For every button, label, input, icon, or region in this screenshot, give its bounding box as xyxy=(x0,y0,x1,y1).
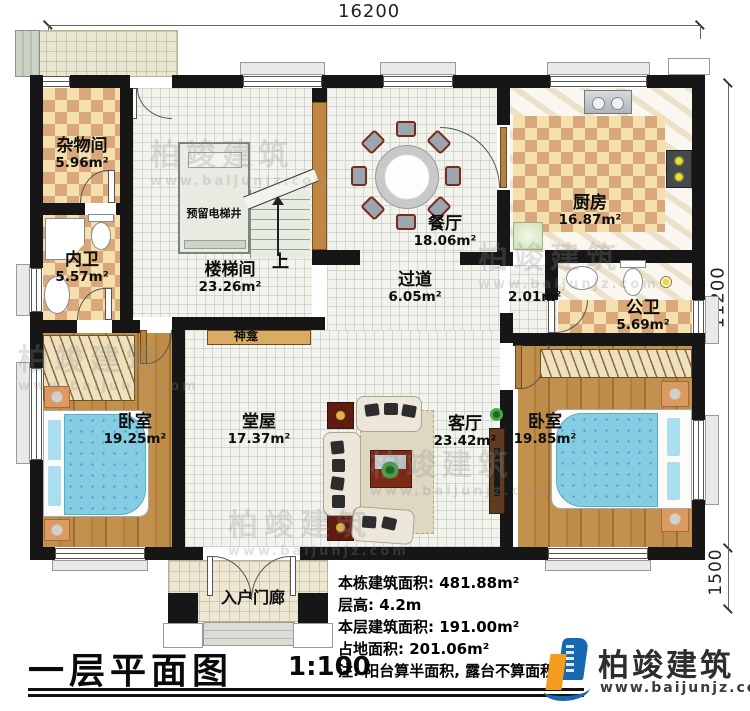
logo-icon xyxy=(542,638,592,698)
end-table xyxy=(327,402,354,429)
porch-pillar xyxy=(168,593,198,623)
room-label-dining: 餐厅 18.06m² xyxy=(400,216,490,248)
sofa-cushion xyxy=(384,403,398,415)
wall-segment xyxy=(43,203,85,215)
wall-segment xyxy=(30,75,43,268)
window-sill xyxy=(547,62,650,75)
room-label-living: 客厅 23.42m² xyxy=(420,416,510,448)
room-label-corridor: 2.01m² xyxy=(508,290,556,304)
dimension-line-porch xyxy=(728,548,729,610)
window xyxy=(548,548,648,559)
burner xyxy=(674,156,684,166)
terrace-steps xyxy=(15,30,40,77)
sofa-cushion xyxy=(381,516,397,531)
toilet-tank xyxy=(620,260,646,268)
sink-basin xyxy=(611,97,624,110)
wall-segment xyxy=(145,547,203,560)
tv xyxy=(494,448,500,496)
info-land-area: 占地面积: 201.06m² xyxy=(338,638,555,660)
wall-segment xyxy=(312,250,360,265)
dimension-line-top xyxy=(48,25,700,26)
pillow xyxy=(47,465,62,507)
sofa xyxy=(323,432,361,516)
logo-url: www.baijunjz.com xyxy=(600,680,750,696)
nightstand xyxy=(44,386,70,408)
door-leaf xyxy=(108,170,115,203)
sofa-cushion xyxy=(330,476,345,491)
wall-segment xyxy=(300,547,548,560)
toilet-tank xyxy=(88,214,114,222)
sofa xyxy=(356,396,422,432)
stove xyxy=(666,150,692,188)
window-sill xyxy=(545,560,651,571)
sofa-cushion xyxy=(330,440,344,454)
dimension-ext xyxy=(700,25,701,39)
title-underline xyxy=(28,694,584,697)
wall-segment xyxy=(500,313,513,343)
elevator-shaft: 预留电梯井 xyxy=(178,142,250,254)
window xyxy=(31,368,42,460)
sink-basin xyxy=(592,97,605,110)
nightstand xyxy=(661,506,689,532)
sofa-cushion xyxy=(332,459,345,472)
window xyxy=(55,548,145,559)
room-label-hallway: 过道 6.05m² xyxy=(372,272,458,304)
kitchen-sink xyxy=(584,90,632,114)
info-floor-height: 层高: 4.2m xyxy=(338,594,555,616)
room-label-storage: 杂物间 5.96m² xyxy=(46,138,118,170)
window-sill xyxy=(705,296,719,344)
wall-segment xyxy=(692,75,705,300)
room-label-kitchen: 厨房 16.87m² xyxy=(545,195,635,227)
wall-segment xyxy=(692,500,705,560)
shrine-label: 神龛 xyxy=(234,330,258,343)
burner xyxy=(674,172,684,182)
info-note: 注: 阳台算半面积, 露台不算面积 xyxy=(338,660,555,682)
pillow xyxy=(666,417,681,457)
end-table xyxy=(327,514,354,541)
sofa-cushion xyxy=(362,516,377,529)
washbasin xyxy=(566,266,598,290)
wall-segment xyxy=(30,312,43,368)
floor-drain xyxy=(660,276,672,288)
dining-table-top xyxy=(384,154,430,200)
room-label-bedroom-right: 卧室 19.85m² xyxy=(500,414,590,446)
room-label-bath-private: 内卫 5.57m² xyxy=(46,252,118,284)
sofa-cushion xyxy=(364,403,380,417)
wall-segment xyxy=(312,88,327,102)
window-sill xyxy=(16,362,30,464)
window-sill xyxy=(705,415,719,505)
wall-segment xyxy=(112,320,140,333)
door-leaf xyxy=(140,330,147,364)
dimension-top: 16200 xyxy=(338,1,400,22)
wall-segment xyxy=(497,190,510,252)
dimension-porch: 1500 xyxy=(706,546,726,598)
wall-segment xyxy=(70,75,130,88)
wall-segment xyxy=(322,75,383,88)
porch-pillar-base xyxy=(293,623,333,648)
window xyxy=(693,420,704,500)
logo-name: 柏竣建筑 xyxy=(598,640,734,685)
dining-chair xyxy=(351,166,367,186)
wall-segment xyxy=(30,460,43,560)
window-sill xyxy=(668,58,710,75)
info-total-area: 本栋建筑面积: 481.88m² xyxy=(338,572,555,594)
page-title: 一层平面图 xyxy=(28,642,233,694)
wall-segment xyxy=(43,320,77,333)
door-leaf xyxy=(105,288,112,320)
room-label-stairhall: 楼梯间 23.26m² xyxy=(180,262,280,294)
window-sill xyxy=(16,264,30,316)
room-label-bedroom-left: 卧室 19.25m² xyxy=(90,414,180,446)
sofa xyxy=(351,506,415,545)
room-label-bath-public: 公卫 5.69m² xyxy=(600,300,686,332)
window xyxy=(383,76,453,87)
room-label-porch: 入户门廊 xyxy=(208,590,298,607)
nightstand xyxy=(661,381,689,407)
info-floor-area: 本层建筑面积: 191.00m² xyxy=(338,616,555,638)
sofa-cushion xyxy=(401,404,417,418)
plant xyxy=(380,460,400,480)
coffee-table xyxy=(370,450,412,488)
window xyxy=(243,76,322,87)
dining-chair xyxy=(445,166,461,186)
elevator-label: 预留电梯井 xyxy=(180,208,248,220)
window xyxy=(31,268,42,312)
window-sill xyxy=(240,62,325,75)
toilet-bowl xyxy=(91,222,111,250)
elevator-detail xyxy=(184,240,246,249)
wall-segment xyxy=(172,75,243,88)
door-leaf xyxy=(500,127,507,188)
wall-segment xyxy=(692,340,705,420)
window xyxy=(40,76,70,87)
wall-segment xyxy=(116,203,133,215)
room-label-hall: 堂屋 17.37m² xyxy=(214,414,304,446)
logo-icon-swoosh xyxy=(544,678,590,701)
shrine-shelf xyxy=(207,330,311,345)
stairs-up-arrow xyxy=(277,200,279,256)
window xyxy=(550,76,647,87)
wall-segment xyxy=(453,75,550,88)
logo-icon-windows xyxy=(566,645,574,673)
info-block: 本栋建筑面积: 481.88m² 层高: 4.2m 本层建筑面积: 191.00… xyxy=(338,572,555,682)
kitchen-cabinet xyxy=(513,222,543,250)
logo: 柏竣建筑 www.baijunjz.com xyxy=(542,636,742,702)
floor-plan: 16200 11200 1500 xyxy=(0,0,750,711)
stairs-arrow-head xyxy=(272,196,284,205)
porch-pillar xyxy=(298,593,328,623)
pillow xyxy=(47,419,62,461)
window-sill xyxy=(52,560,148,571)
title-underline xyxy=(28,688,584,691)
nightstand xyxy=(44,519,70,541)
wall-segment xyxy=(497,88,510,125)
pillow xyxy=(666,461,681,501)
wall-segment xyxy=(500,252,513,266)
door-leaf xyxy=(515,345,522,389)
sofa-cushion xyxy=(332,495,345,508)
dining-chair xyxy=(396,121,416,137)
elevator-detail xyxy=(188,152,242,168)
window-sill xyxy=(380,62,456,75)
toilet-bowl xyxy=(623,268,643,296)
wardrobe xyxy=(540,349,692,378)
